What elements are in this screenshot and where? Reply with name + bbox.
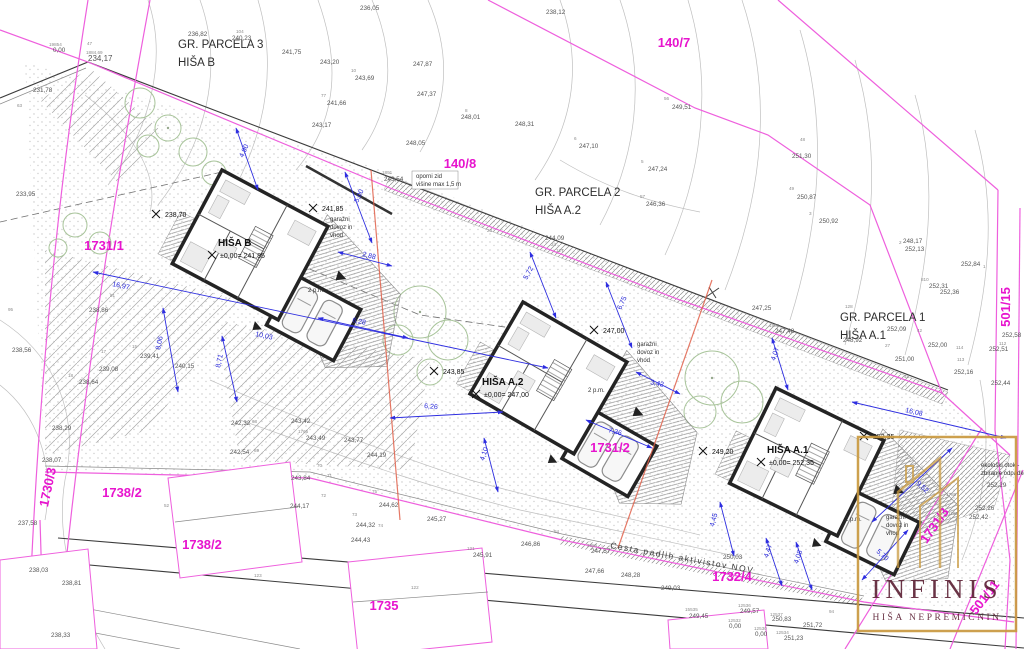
point-number: 12536 [738,603,751,608]
point-number: 70 [317,463,323,468]
elevation-label: 247,66 [585,568,605,575]
elevation-label: 244,62 [379,502,399,509]
elevation-label: 248,31 [515,121,535,128]
elevation-label: 238,33 [51,632,71,639]
point-number: 1891 [382,170,393,175]
point-number: 75 [372,489,378,494]
elevation-label: 240,15 [175,363,195,370]
point-number: 84 [554,529,560,534]
point-number: 104 [236,29,244,34]
elevation-label: 231,78 [33,87,53,94]
note-label: garažni [637,342,657,348]
elevation-label: 252,09 [887,326,907,333]
note-label: višine max 1,5 m [416,182,461,188]
point-number: 3 [809,211,812,216]
building-outline [0,549,97,649]
point-number: 112 [999,341,1007,346]
elevation-label: 251,72 [803,622,823,629]
point-number: 12537 [770,612,783,617]
elevation-label: 250,92 [819,218,839,225]
elevation-label: 244,32 [356,522,376,529]
elevation-label: 243,69 [355,75,375,82]
logo-title: INFINIS [871,574,1002,604]
elevation-label: 244,19 [367,452,387,459]
area-title: HIŠA A.2 [535,204,581,217]
elevation-label: 244,09 [545,235,565,242]
elevation-label: 236,05 [360,5,380,12]
elevation-label: 238,56 [12,347,32,354]
point-number: 91 [110,293,116,298]
point-number: 19854 [49,42,62,47]
elevation-label: 247,10 [579,143,599,150]
elevation-label: 242,54 [230,449,250,456]
point-number: 77 [321,93,327,98]
note-label: ekološki otok - [981,463,1019,469]
elevation-label: 238,07 [42,457,62,464]
elevation-label: 248,92 [843,337,863,344]
area-title: HIŠA B [178,56,215,69]
area-title: GR. PARCELA 1 [840,312,925,324]
elevation-label: 247,48 [775,328,795,335]
elevation-label: 243,20 [320,59,340,66]
parcel-number: 140/8 [444,156,477,171]
point-number: 63 [17,103,23,108]
elevation-label: 234,17 [88,54,113,63]
elevation-label: 251,30 [792,153,812,160]
parcel-number: 1731/2 [590,440,630,455]
site-plan-svg: 140/7140/81731/11731/21738/21738/2173517… [0,0,1024,649]
parcel-number: 1738/2 [102,485,142,500]
elevation-label: 244,43 [351,537,371,544]
elevation-label: 248,17 [903,238,923,245]
elevation-label: 247,37 [417,91,437,98]
elevation-label: 243,54 [384,176,404,183]
point-number: 15 [132,344,138,349]
spot-elevation: 243,85 [443,369,465,376]
elevation-label: 243,49 [306,435,326,442]
elevation-label: 252,42 [969,514,989,521]
elevation-label: 247,87 [413,61,433,68]
point-number: 113 [957,357,965,362]
point-number: 71 [327,473,333,478]
elevation-label: 251,00 [895,356,915,363]
elevation-label: 249,57 [740,608,760,615]
elevation-label: 238,12 [546,9,566,16]
point-number: 1788 [946,492,957,497]
elevation-label: 250,83 [772,616,792,623]
elevation-label: 233,95 [16,191,36,198]
elevation-label: 247,57 [591,548,611,555]
elevation-label: 243,17 [312,122,332,129]
elevation-label: 252,44 [991,380,1011,387]
point-number: 43 [904,374,910,379]
elevation-label: 236,82 [188,31,208,38]
point-number: 42 [917,328,923,333]
spot-elevation: 247,00 [603,328,625,335]
point-number: 27 [885,343,891,348]
elevation-label: 249,51 [672,104,692,111]
elevation-label: 252,58 [1002,332,1022,339]
point-number: 95 [8,307,14,312]
point-number: 52 [164,503,170,508]
elevation-label: 252,29 [987,482,1007,489]
elevation-label: 252,16 [954,369,974,376]
point-number: 123 [254,573,262,578]
elevation-label: 245,27 [427,516,447,523]
note-label: 2 p.m. [845,517,862,523]
elevation-label: 252,26 [975,505,995,512]
elevation-label: 246,36 [646,201,666,208]
point-number: 3885 [587,543,598,548]
elevation-label: 240,23 [232,35,252,42]
house-level: ±0,00= 241,85 [220,253,265,260]
point-number: 12534 [776,630,789,635]
point-number: 17 [101,349,107,354]
point-number: 1884,69 [86,50,103,55]
elevation-label: 238,03 [29,567,49,574]
elevation-label: 249,45 [689,613,709,620]
elevation-label: 243,77 [344,437,364,444]
parcel-number: 1730/3 [36,466,59,508]
point-number: 128 [845,304,853,309]
elevation-label: 238,64 [79,379,99,386]
point-number: 121 [467,546,475,551]
note-label: dovoz in [637,350,659,356]
point-number: 114 [956,345,964,350]
house-level: ±0,00= 252,35 [769,460,814,467]
elevation-label: 250,87 [797,194,817,201]
elevation-label: 252,36 [940,289,960,296]
point-number: 24 [551,242,557,247]
elevation-label: 243,84 [291,475,311,482]
point-number: 1765 [298,429,309,434]
point-number: 49 [789,186,795,191]
point-number: 1 [983,264,986,269]
spot-elevation: 249,20 [712,449,734,456]
elevation-label: 244,17 [290,503,310,510]
parcel-number: 1735 [370,598,399,613]
point-number: 48 [800,137,806,142]
point-number: 18 [68,373,74,378]
elevation-label: 239,41 [140,353,160,360]
point-number: 127 [556,248,564,253]
elevation-label: 247,25 [752,305,772,312]
elevation-label: 252,84 [961,261,981,268]
elevation-label: 242,32 [231,420,251,427]
point-number: 5 [641,159,644,164]
elevation-label: 252,51 [989,346,1009,353]
point-number: 12532 [728,618,741,623]
point-number: 73 [352,512,358,517]
point-number: 122 [411,585,419,590]
dimension-label: 6,26 [424,403,438,411]
point-number: 6 [574,136,577,141]
house-name: HIŠA B [218,236,252,249]
elevation-label: 238,29 [52,425,72,432]
elevation-label: 241,66 [327,100,347,107]
point-number: 2 [899,240,902,245]
point-number: 74 [378,523,384,528]
spot-elevation: 241,85 [322,206,344,213]
note-label: zbiranje odpadkov [981,471,1024,477]
point-number: 56 [664,96,670,101]
elevation-label: 241,75 [282,49,302,56]
elevation-label: 0,00 [755,631,768,638]
elevation-label: 238,86 [89,307,109,314]
point-number: 72 [321,493,327,498]
note-label: garažni [886,515,906,521]
spot-elevation: 238,70 [165,212,187,219]
building-outline [168,462,302,578]
elevation-label: 0,00 [53,47,66,54]
point-number: 10 [351,68,357,73]
note-label: vhod [637,358,650,364]
logo-subtitle: HIŠA NEPREMIČNIN [873,611,1002,623]
note-label: vhod [330,233,343,239]
elevation-label: 238,81 [62,580,82,587]
house-name: HIŠA A.2 [482,375,524,388]
elevation-label: 248,01 [461,114,481,121]
site-plan-drawing: 140/7140/81731/11731/21738/21738/2173517… [0,0,1024,649]
point-number: 1980 [769,323,780,328]
point-number: 810 [921,277,929,282]
parcel-number: 501/15 [998,287,1013,327]
elevation-label: 243,42 [291,418,311,425]
elevation-label: 245,91 [473,552,493,559]
elevation-label: 237,58 [18,520,38,527]
house-name: HIŠA A.1 [767,443,809,456]
note-label: dovoz in [330,225,352,231]
note-label: 2 p.m. [308,288,325,294]
point-number: 94 [829,609,835,614]
point-number: 68 [252,419,258,424]
elevation-label: 251,23 [784,635,804,642]
point-number: 47 [87,41,93,46]
elevation-label: 248,28 [621,572,641,579]
point-number: 57 [640,194,646,199]
point-number: 15535 [685,607,698,612]
point-number: 69 [254,448,260,453]
parcel-number: 140/7 [658,35,691,50]
elevation-label: 246,86 [521,541,541,548]
elevation-label: 249,03 [661,585,681,592]
note-label: oporni zid [416,174,442,180]
building-outline [668,610,768,649]
parcel-number: 1738/2 [182,537,222,552]
elevation-label: 248,05 [406,140,426,147]
point-number: 12530 [754,626,767,631]
note-label: 2 p.m. [588,388,605,394]
area-title: GR. PARCELA 2 [535,187,620,199]
elevation-label: 252,13 [905,246,925,253]
elevation-label: 247,24 [648,166,668,173]
elevation-label: 0,00 [729,623,742,630]
house-level: ±0,00= 247,00 [484,392,529,399]
elevation-label: 239,08 [99,366,119,373]
note-label: garažni [330,217,350,223]
point-number: 23 [487,228,493,233]
elevation-label: 252,00 [928,342,948,349]
point-number: 8 [465,108,468,113]
parcel-number: 1731/1 [84,238,124,253]
